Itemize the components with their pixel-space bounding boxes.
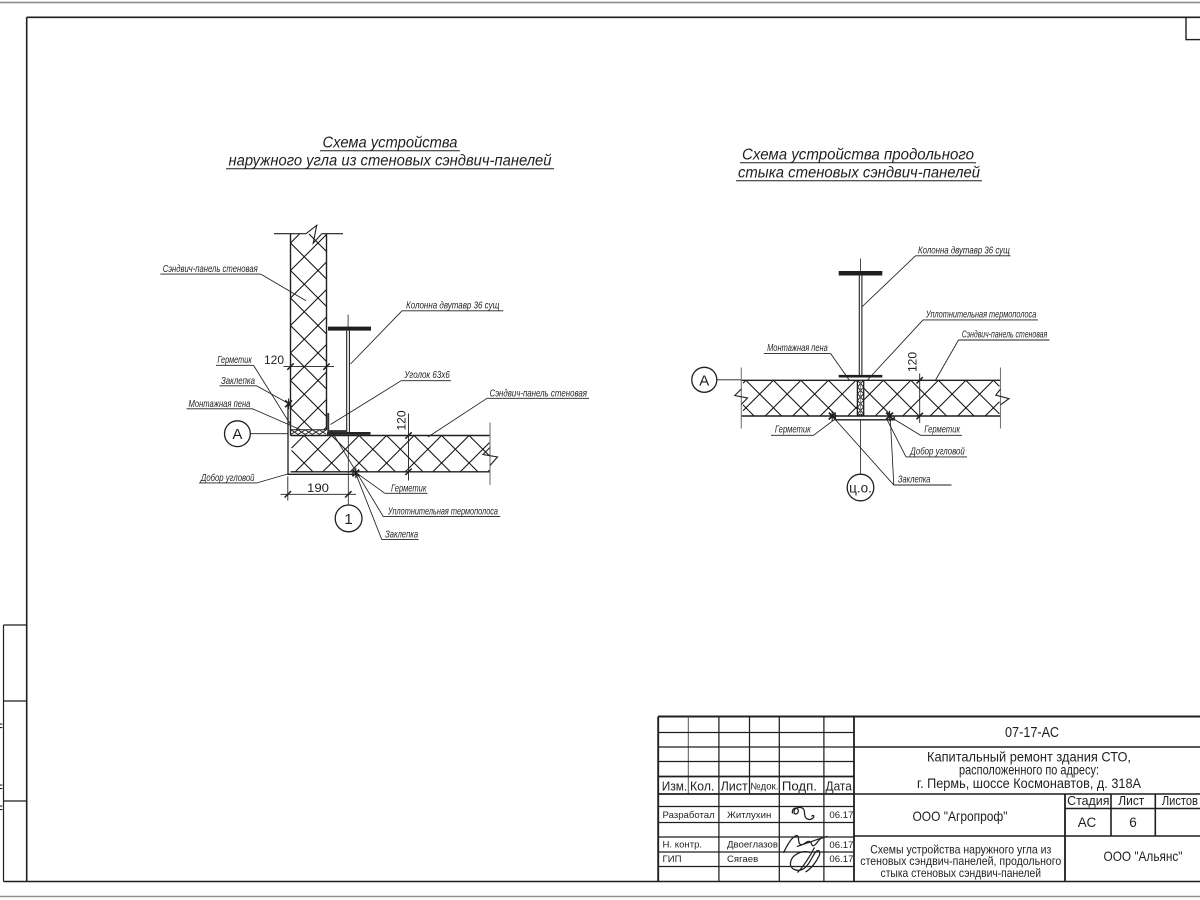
svg-text:Добор угловой: Добор угловой	[910, 445, 965, 457]
svg-text:Заклепка: Заклепка	[385, 528, 418, 540]
svg-text:ц.о.: ц.о.	[849, 480, 872, 495]
svg-text:190: 190	[307, 481, 329, 495]
svg-text:Сягаев: Сягаев	[727, 854, 758, 865]
svg-text:Подп.: Подп.	[782, 779, 817, 794]
svg-text:наружного угла из стеновых сэн: наружного угла из стеновых сэндвич-панел…	[229, 153, 552, 170]
svg-text:Добор угловой: Добор угловой	[200, 472, 254, 484]
svg-text:Сэндвич-панель стеновая: Сэндвич-панель стеновая	[163, 263, 258, 275]
svg-text:Сэндвич-панель стеновая: Сэндвич-панель стеновая	[962, 329, 1048, 341]
svg-text:Схема устройства продольного: Схема устройства продольного	[742, 147, 974, 164]
svg-text:ООО "Альянс": ООО "Альянс"	[1104, 848, 1183, 864]
svg-text:6: 6	[1129, 815, 1137, 830]
svg-text:120: 120	[395, 410, 409, 430]
svg-text:Кол.: Кол.	[690, 779, 715, 794]
svg-text:Изм.: Изм.	[662, 779, 687, 794]
svg-text:Схема устройства: Схема устройства	[323, 135, 458, 152]
svg-text:ГИП: ГИП	[663, 854, 682, 865]
svg-text:Герметик: Герметик	[775, 424, 812, 436]
svg-text:г. Пермь, шоссе Космонавтов, д: г. Пермь, шоссе Космонавтов, д. 318А	[917, 776, 1142, 791]
svg-text:АС: АС	[1078, 815, 1097, 830]
svg-text:06.17: 06.17	[829, 810, 853, 821]
svg-text:Дата: Дата	[826, 779, 853, 794]
svg-text:07-17-АС: 07-17-АС	[1005, 725, 1059, 741]
svg-text:Колонна двутавр 36 сущ: Колонна двутавр 36 сущ	[406, 299, 499, 311]
svg-text:Двоеглазов: Двоеглазов	[727, 840, 778, 851]
svg-text:Сэндвич-панель стеновая: Сэндвич-панель стеновая	[490, 387, 588, 399]
svg-text:Разработал: Разработал	[663, 810, 715, 821]
svg-text:Листов: Листов	[1162, 794, 1198, 808]
svg-text:Герметик: Герметик	[391, 482, 427, 494]
svg-text:Герметик: Герметик	[924, 424, 961, 436]
svg-text:06.17: 06.17	[829, 840, 853, 851]
svg-text:Лист: Лист	[1118, 794, 1144, 808]
svg-text:Заклепка: Заклепка	[898, 473, 931, 485]
svg-text:1: 1	[344, 511, 352, 528]
svg-text:Житлухин: Житлухин	[727, 810, 771, 821]
svg-text:А: А	[699, 372, 709, 389]
svg-text:Монтажная пена: Монтажная пена	[767, 342, 828, 354]
svg-text:стыка стеновых сэндвич-панелей: стыка стеновых сэндвич-панелей	[738, 165, 980, 182]
svg-text:120: 120	[906, 352, 920, 372]
svg-text:Заклепка: Заклепка	[221, 375, 255, 387]
svg-text:Уплотнительная термополоса: Уплотнительная термополоса	[387, 505, 498, 517]
svg-text:Уплотнительная термополоса: Уплотнительная термополоса	[925, 308, 1036, 320]
svg-text:А: А	[232, 426, 242, 443]
svg-text:Стадия: Стадия	[1067, 794, 1109, 808]
svg-text:Н. контр.: Н. контр.	[663, 840, 703, 851]
svg-text:06.17: 06.17	[829, 854, 853, 865]
svg-text:Колонна двутавр 36 сущ: Колонна двутавр 36 сущ	[918, 245, 1010, 257]
svg-text:120: 120	[264, 353, 284, 367]
svg-text:Лист: Лист	[721, 779, 748, 794]
svg-text:Уголок 63х6: Уголок 63х6	[404, 369, 450, 381]
svg-text:Герметик: Герметик	[217, 354, 252, 366]
svg-text:ООО "Агропроф": ООО "Агропроф"	[913, 808, 1008, 824]
svg-text:№док.: №док.	[750, 782, 778, 793]
svg-text:стыка стеновых сэндвич-панелей: стыка стеновых сэндвич-панелей	[881, 866, 1042, 880]
svg-text:Монтажная пена: Монтажная пена	[189, 398, 251, 410]
